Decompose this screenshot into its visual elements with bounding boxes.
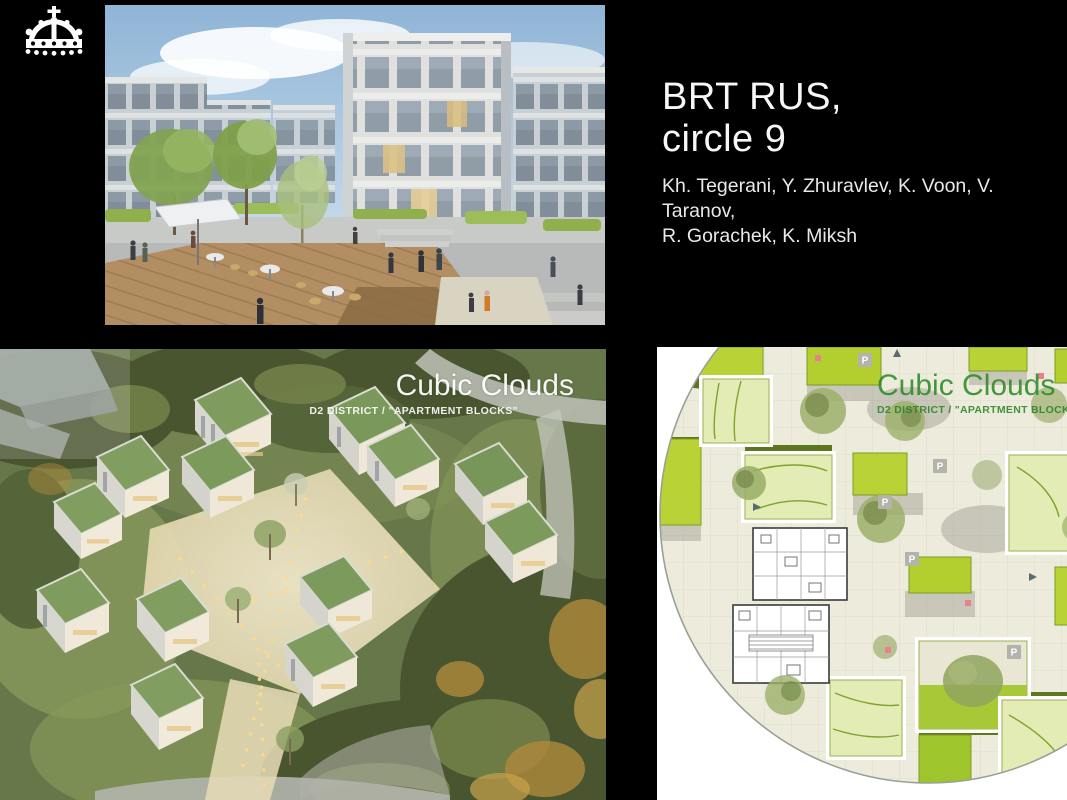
slide-title-line2: circle 9 bbox=[662, 118, 1067, 160]
authors-text: Kh. Tegerani, Y. Zhuravlev, K. Voon, V. … bbox=[662, 174, 1067, 249]
sunlit-patch bbox=[435, 277, 553, 325]
courtyard-rendering-image bbox=[105, 5, 605, 325]
context-buildings bbox=[0, 349, 130, 459]
aerial-image-subtitle: D2 DISTRICT / "APARTMENT BLOCKS" bbox=[309, 405, 518, 417]
plan-image-subtitle: D2 DISTRICT / "APARTMENT BLOCKS" bbox=[877, 404, 1067, 416]
apartment-building-right bbox=[513, 67, 605, 237]
courtyard-rendering-svg bbox=[105, 5, 605, 325]
authors-line1: Kh. Tegerani, Y. Zhuravlev, K. Voon, V. … bbox=[662, 174, 1067, 224]
slide-title-line1: BRT RUS, bbox=[662, 76, 1067, 118]
svg-text:P: P bbox=[1011, 648, 1018, 659]
aerial-image-title: Cubic Clouds bbox=[396, 369, 574, 403]
site-plan-image: P P P P P bbox=[657, 347, 1067, 800]
plan-image-title: Cubic Clouds bbox=[877, 369, 1055, 403]
crown-logo bbox=[16, 5, 92, 65]
slide-header: BRT RUS, circle 9 Kh. Tegerani, Y. Zhura… bbox=[662, 76, 1067, 249]
stairs bbox=[377, 229, 453, 247]
svg-text:P: P bbox=[882, 498, 889, 509]
aerial-rendering-image: Cubic Clouds D2 DISTRICT / "APARTMENT BL… bbox=[0, 349, 606, 800]
apartment-building-central bbox=[343, 33, 511, 227]
authors-line2: R. Gorachek, K. Miksh bbox=[662, 224, 1067, 249]
presentation-slide: BRT RUS, circle 9 Kh. Tegerani, Y. Zhura… bbox=[0, 0, 1067, 800]
svg-text:P: P bbox=[909, 555, 916, 566]
svg-text:P: P bbox=[862, 356, 869, 367]
crown-icon bbox=[16, 5, 92, 65]
svg-text:P: P bbox=[937, 462, 944, 473]
